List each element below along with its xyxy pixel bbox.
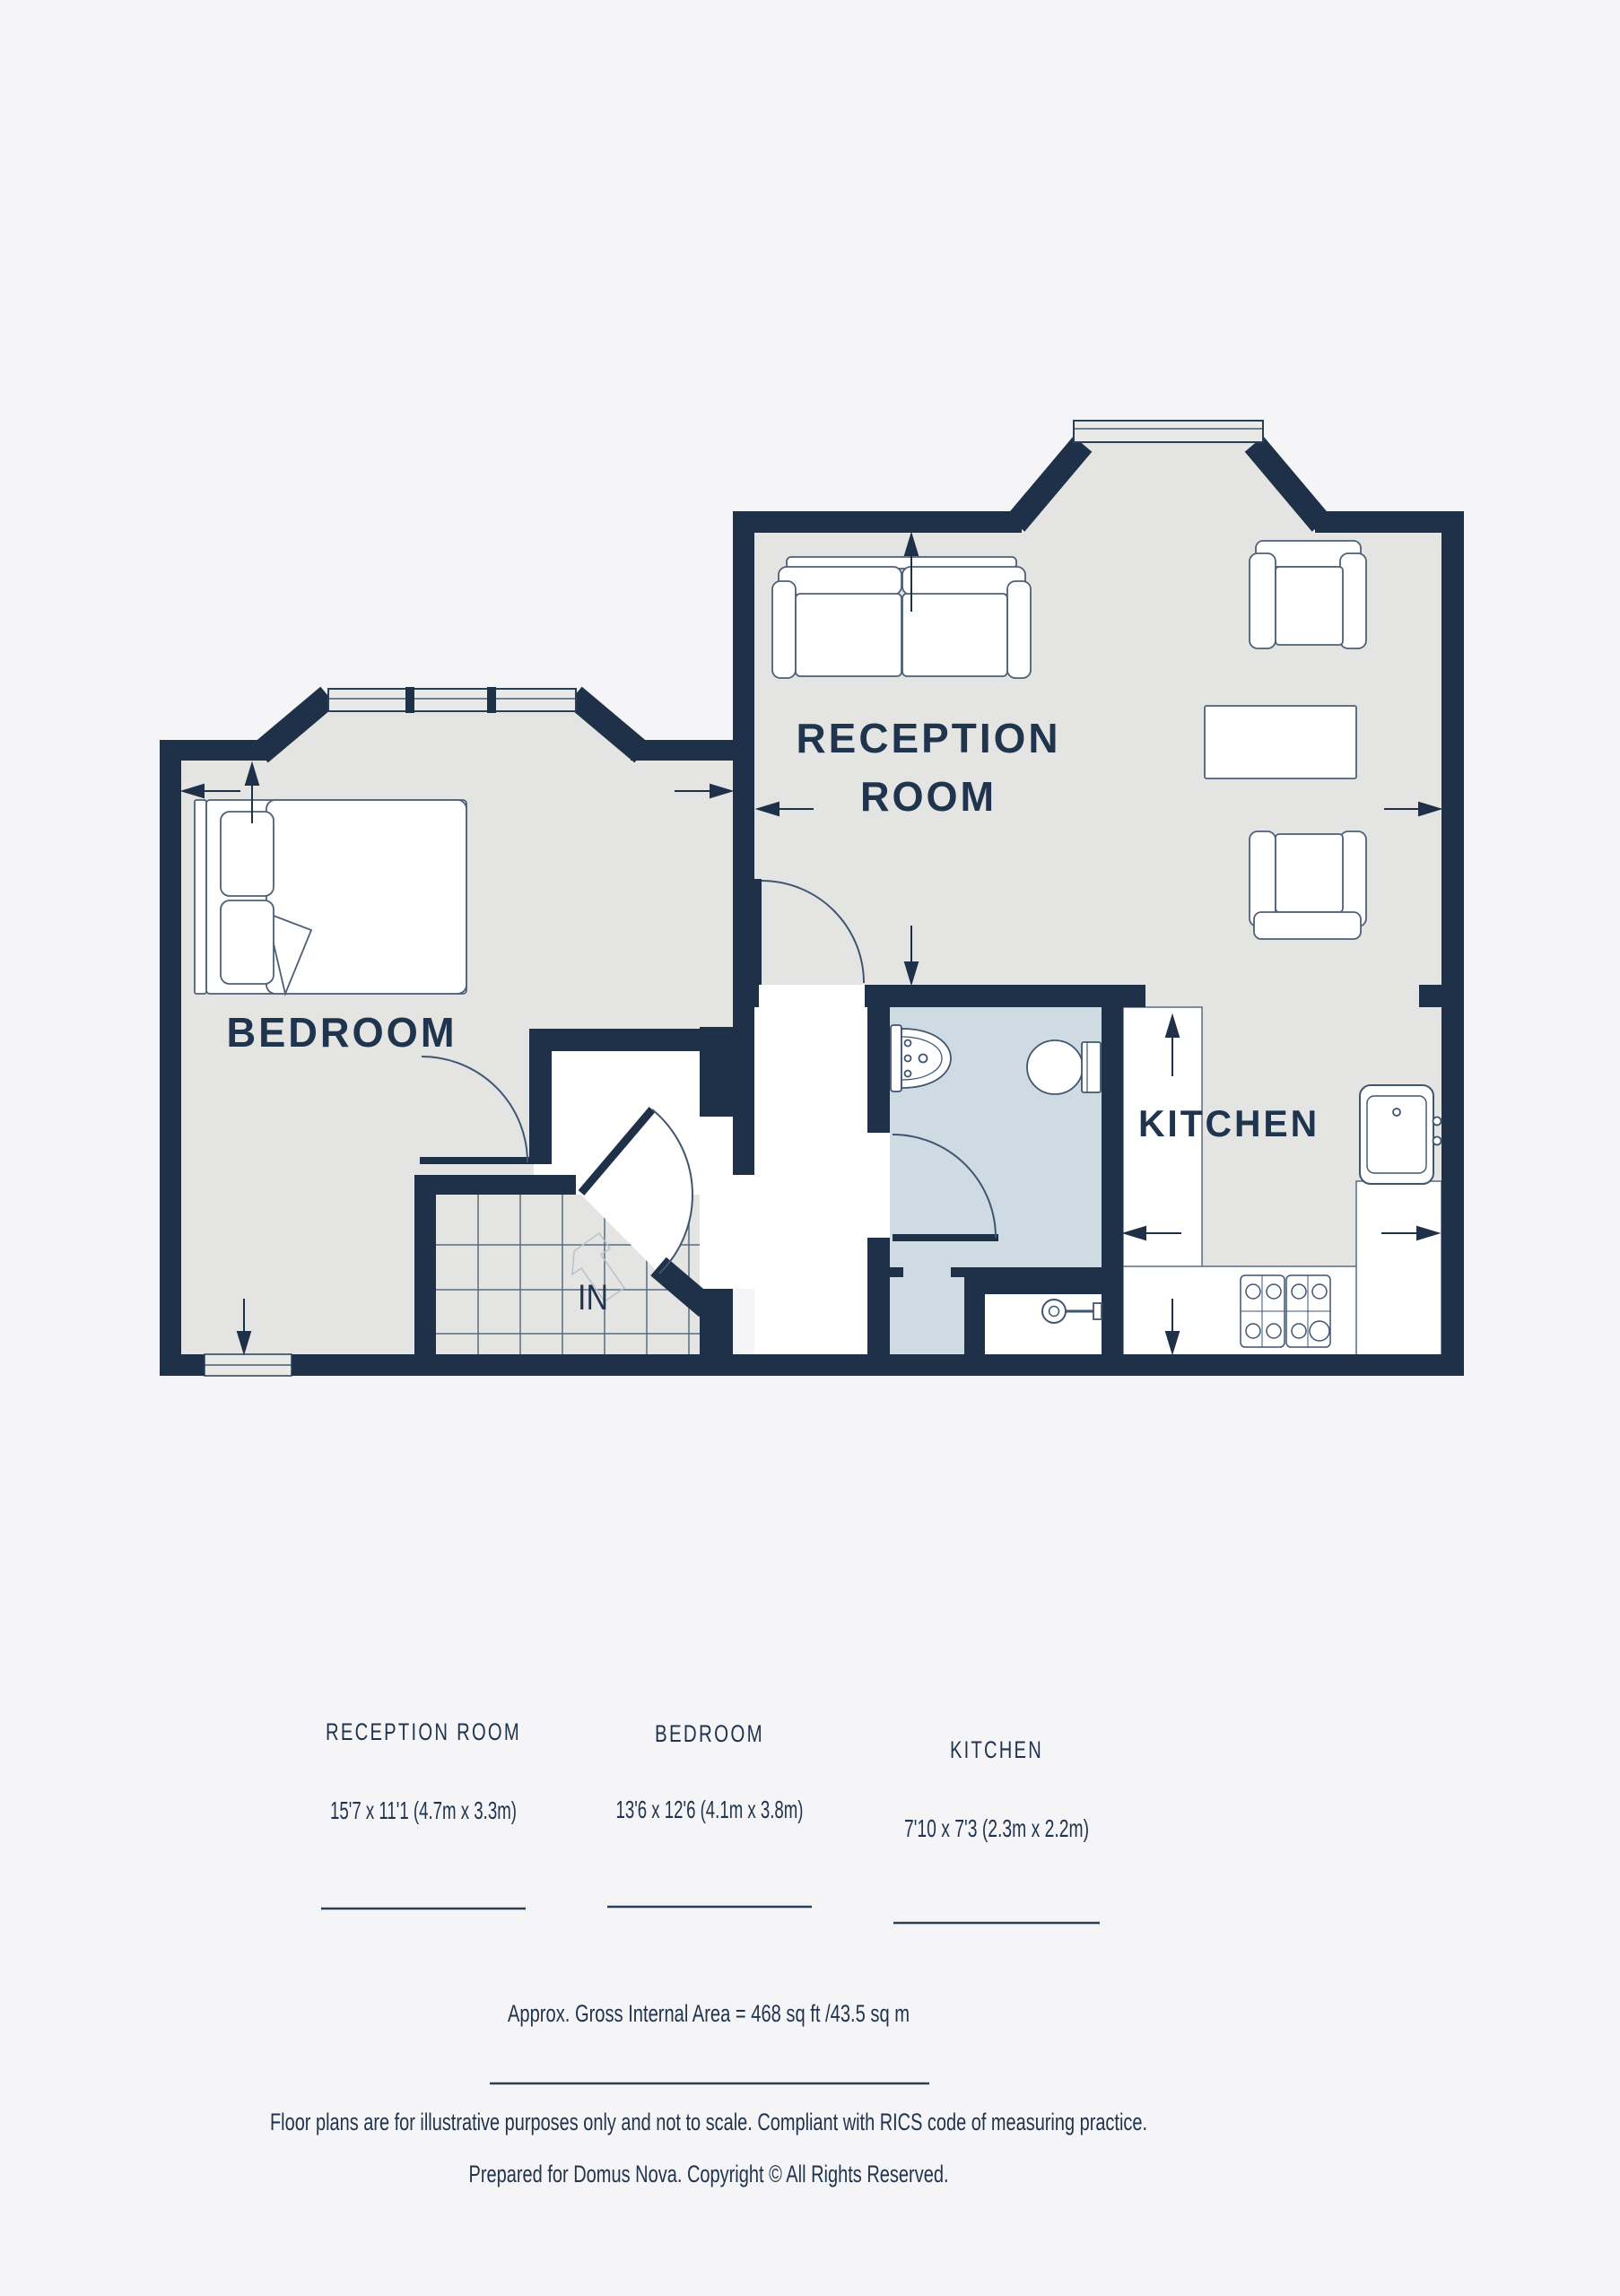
bed [195,800,466,994]
kitchen-label: KITCHEN [1138,1102,1320,1144]
reception-room-label-line1: RECEPTION [797,715,1061,761]
bedroom-bottom-window [205,1354,292,1376]
pillow [221,812,274,896]
dimension-reception-name: RECEPTION ROOM [326,1718,521,1745]
dimension-bedroom: BEDROOM 13'6 x 12'6 (4.1m x 3.8m) [607,1720,812,1907]
dimension-kitchen-name: KITCHEN [950,1736,1043,1763]
floorplan-canvas: RECEPTION ROOM BEDROOM KITCHEN IN RECEPT… [0,0,1620,2296]
disclaimer-text: Floor plans are for illustrative purpose… [270,2109,1147,2135]
footer: Approx. Gross Internal Area = 468 sq ft … [270,2000,1147,2187]
dimensions-legend: RECEPTION ROOM 15'7 x 11'1 (4.7m x 3.3m)… [321,1718,1100,1923]
reception-bay-window [1074,421,1263,442]
armchair-top [1250,541,1366,648]
sofa [772,557,1031,678]
gross-internal-area: Approx. Gross Internal Area = 468 sq ft … [508,2000,910,2027]
copyright-text: Prepared for Domus Nova. Copyright © All… [469,2161,949,2187]
floorplan-page: RECEPTION ROOM BEDROOM KITCHEN IN RECEPT… [0,0,1620,2296]
dimension-bedroom-name: BEDROOM [655,1720,764,1747]
dimension-reception: RECEPTION ROOM 15'7 x 11'1 (4.7m x 3.3m) [321,1718,526,1909]
kitchen-sink [1360,1085,1441,1184]
bedroom-label: BEDROOM [227,1009,457,1056]
dimension-bedroom-size: 13'6 x 12'6 (4.1m x 3.8m) [616,1796,804,1823]
coffee-table [1205,706,1356,778]
bedroom-bay-window [328,687,576,713]
armchair-bottom [1250,831,1366,939]
dimension-kitchen: KITCHEN 7'10 x 7'3 (2.3m x 2.2m) [893,1736,1100,1923]
entrance-label: IN [578,1278,608,1318]
dimension-kitchen-size: 7'10 x 7'3 (2.3m x 2.2m) [904,1814,1089,1842]
reception-room-label-line2: ROOM [860,773,997,820]
toilet [1027,1040,1101,1094]
pillow [221,900,274,984]
dimension-reception-size: 15'7 x 11'1 (4.7m x 3.3m) [330,1796,517,1824]
